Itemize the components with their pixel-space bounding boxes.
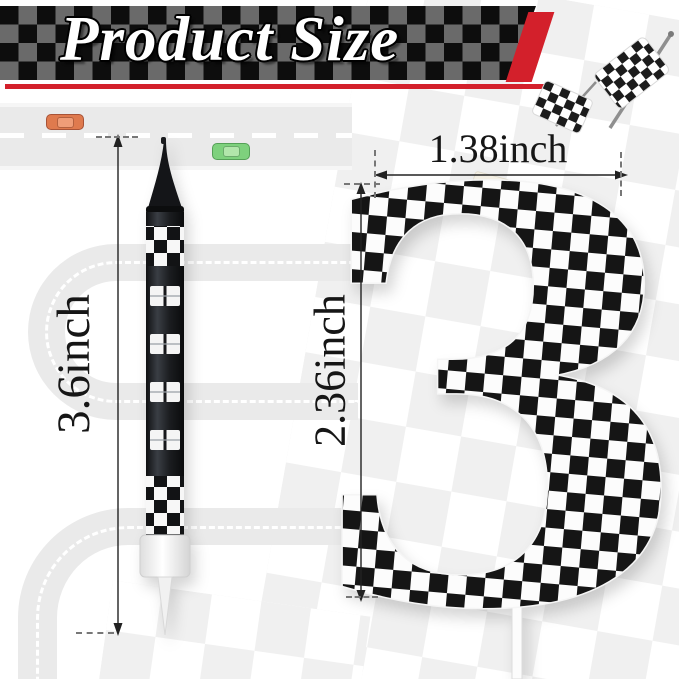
number-height-label: 2.36inch	[305, 261, 356, 481]
candle-tip	[148, 140, 182, 208]
candle-holder	[140, 535, 190, 577]
green-car-icon	[212, 143, 250, 160]
product-size-image: Product Size	[0, 0, 679, 679]
candle-checker-band-top	[146, 226, 184, 266]
dimension-arrow-stick-height	[106, 132, 130, 638]
candle-spike	[158, 577, 172, 635]
stick-candle-image	[128, 136, 203, 641]
dimension-tick	[374, 150, 376, 198]
dimension-tick	[76, 632, 114, 634]
car-roof	[223, 146, 240, 157]
number-width-label: 1.38inch	[388, 125, 608, 172]
number-3-candle-image: 3	[355, 158, 645, 679]
car-roof	[57, 117, 74, 128]
flag-pole-cap	[668, 31, 674, 37]
dimension-tick	[346, 596, 378, 598]
dimension-tick	[620, 152, 622, 196]
dimension-tick	[96, 136, 138, 138]
header-banner: Product Size	[0, 6, 536, 80]
orange-car-icon	[46, 114, 84, 130]
stick-height-label: 3.6inch	[47, 254, 101, 474]
candle-tip-point	[161, 137, 166, 144]
page-title: Product Size	[60, 3, 399, 76]
candle-checker-band-bottom	[146, 476, 184, 534]
